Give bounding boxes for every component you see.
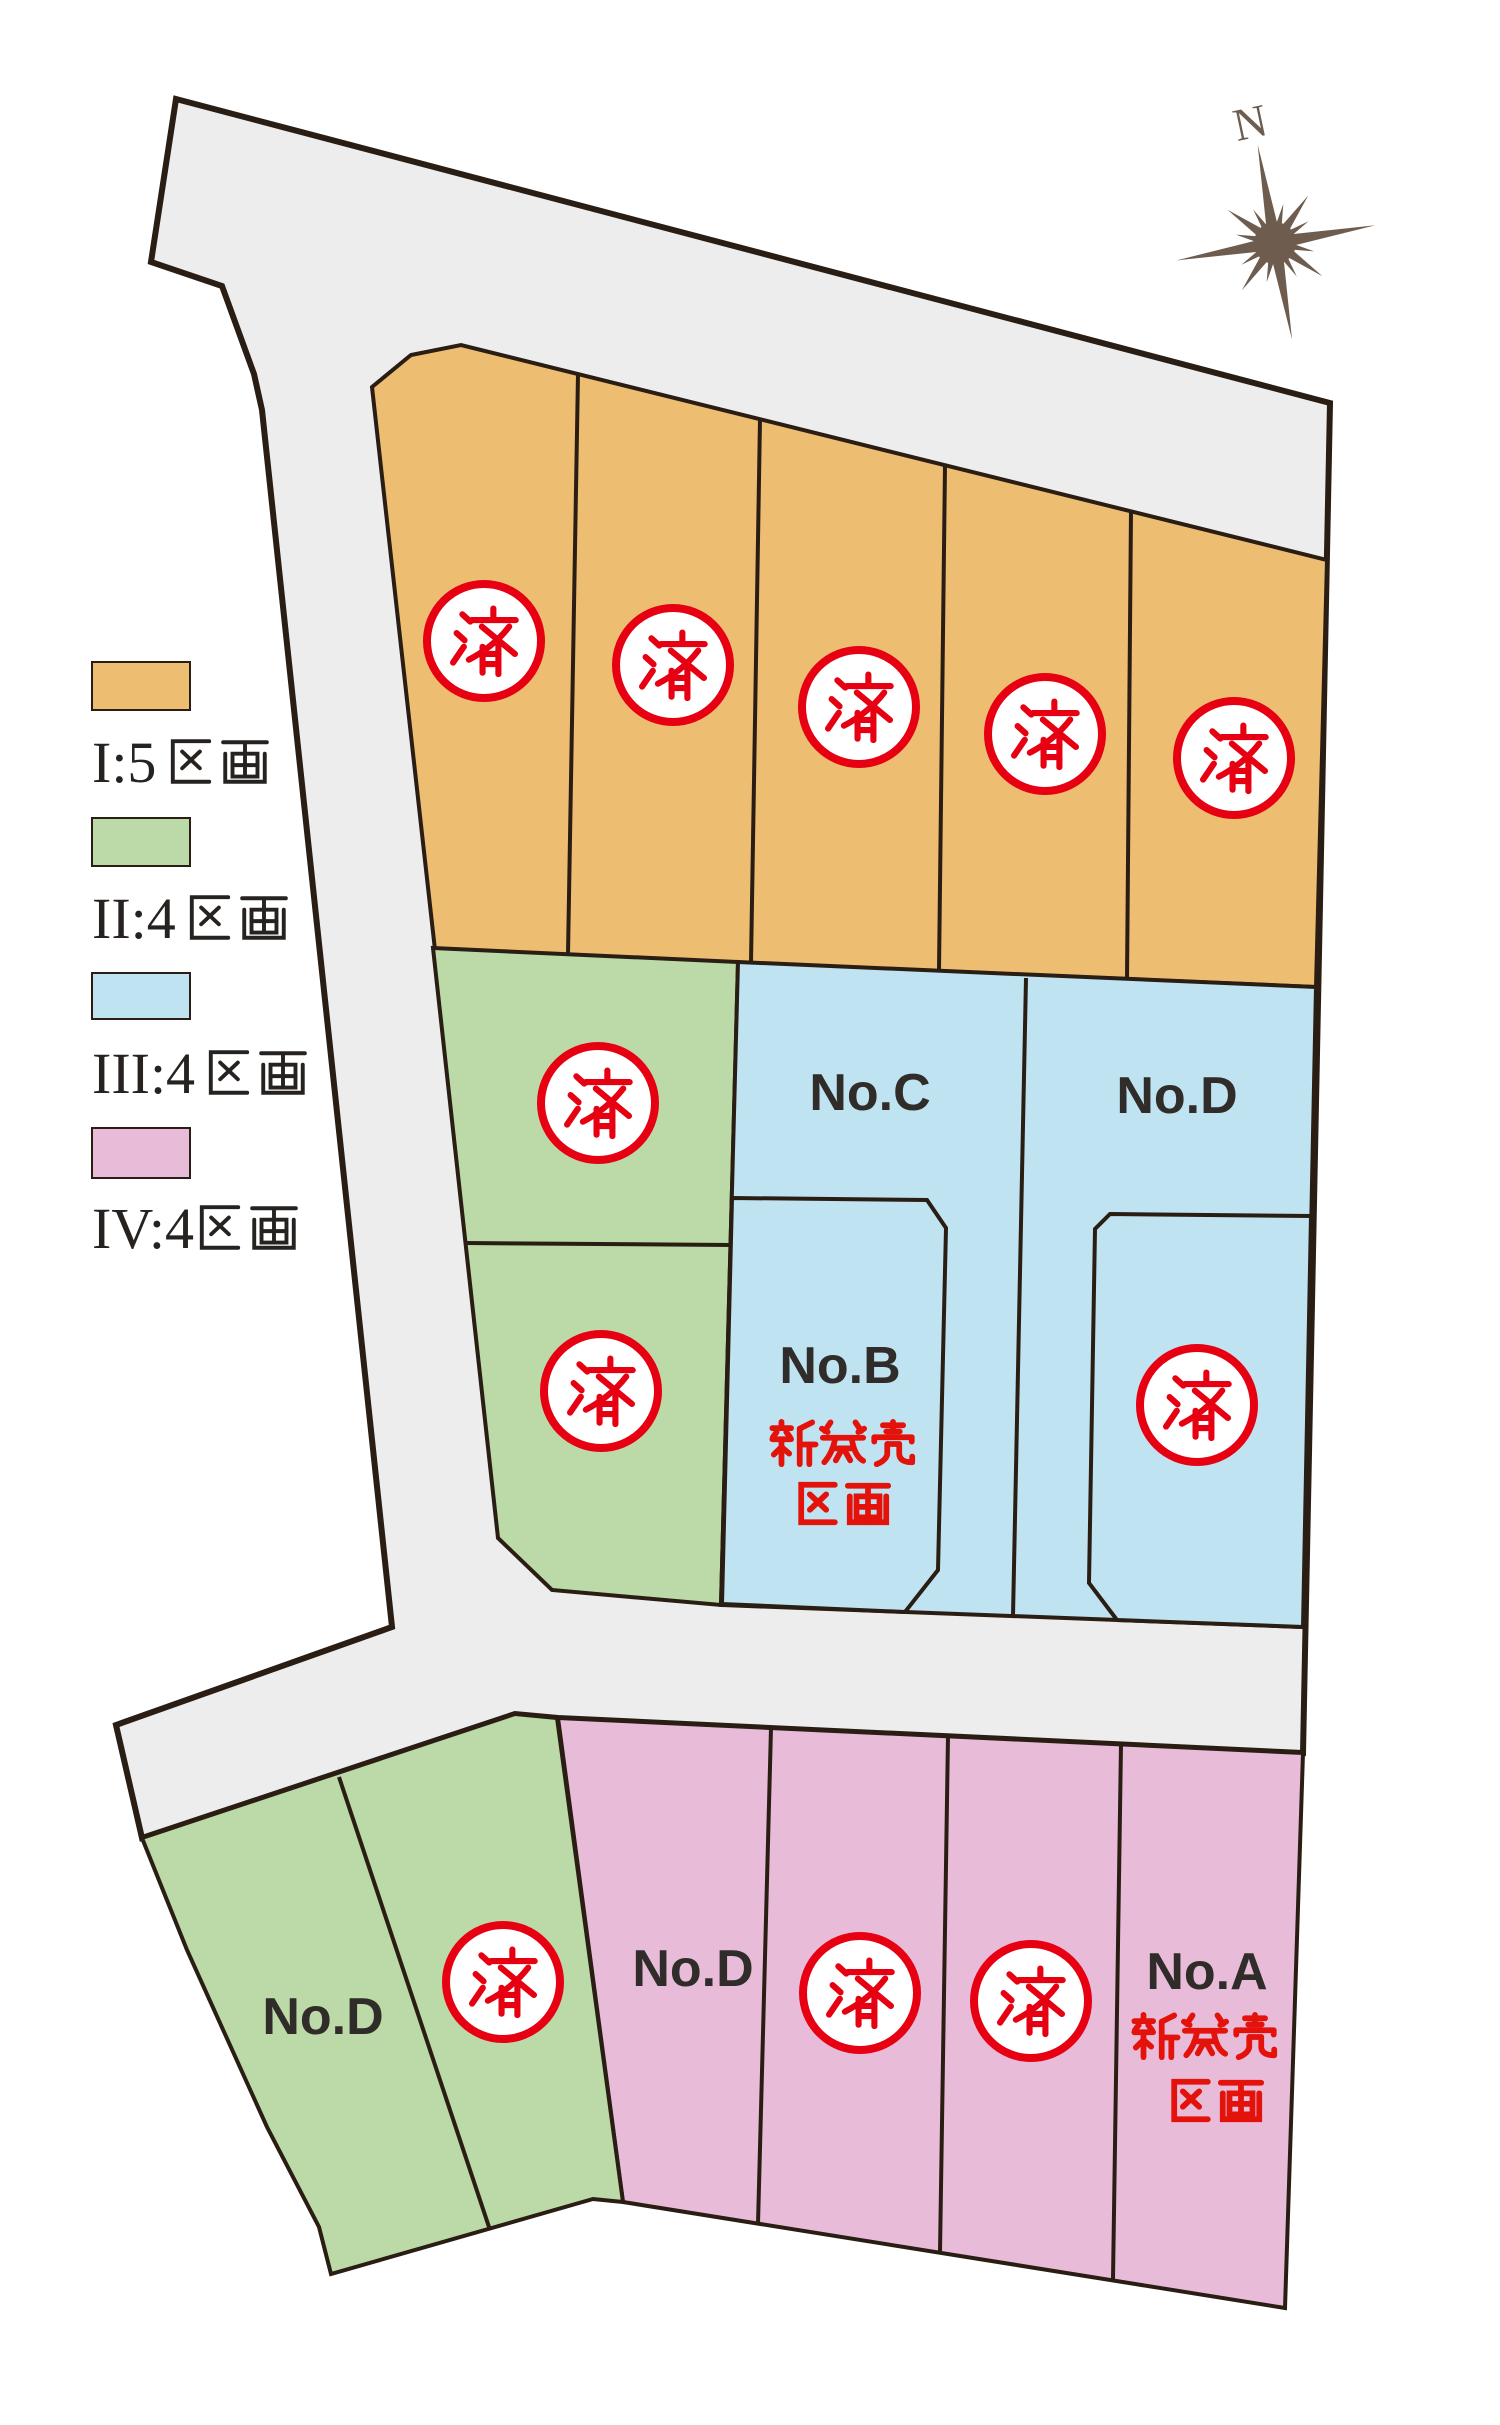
svg-text:No.C: No.C [809,1064,930,1122]
svg-text:No.D: No.D [262,1988,383,2046]
svg-text:No.D: No.D [1116,1067,1237,1125]
svg-text:No.A: No.A [1146,1943,1267,2001]
svg-text:II:4: II:4 [92,886,176,951]
svg-text:N: N [1229,94,1272,151]
svg-text:IV:4: IV:4 [92,1196,194,1261]
svg-text:No.B: No.B [779,1337,900,1395]
svg-text:No.D: No.D [632,1940,753,1998]
svg-text:III:4: III:4 [92,1041,195,1106]
svg-text:I:5: I:5 [92,730,156,795]
